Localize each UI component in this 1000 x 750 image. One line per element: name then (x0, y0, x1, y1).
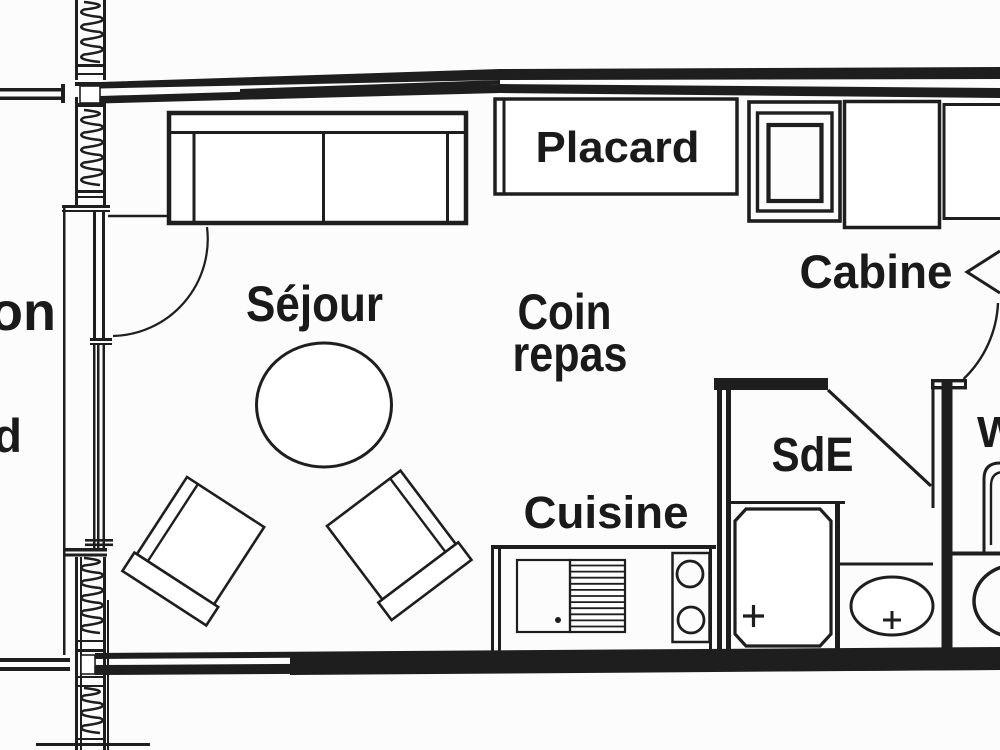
svg-text:Placard: Placard (536, 123, 700, 172)
svg-text:repas: repas (513, 326, 628, 382)
svg-text:Cabine: Cabine (800, 245, 953, 298)
svg-text:Séjour: Séjour (246, 276, 383, 332)
svg-text:d: d (0, 409, 22, 462)
svg-text:SdE: SdE (772, 429, 854, 482)
svg-text:Cuisine: Cuisine (524, 487, 689, 538)
svg-text:W: W (977, 408, 1000, 457)
svg-text:on: on (0, 282, 56, 342)
